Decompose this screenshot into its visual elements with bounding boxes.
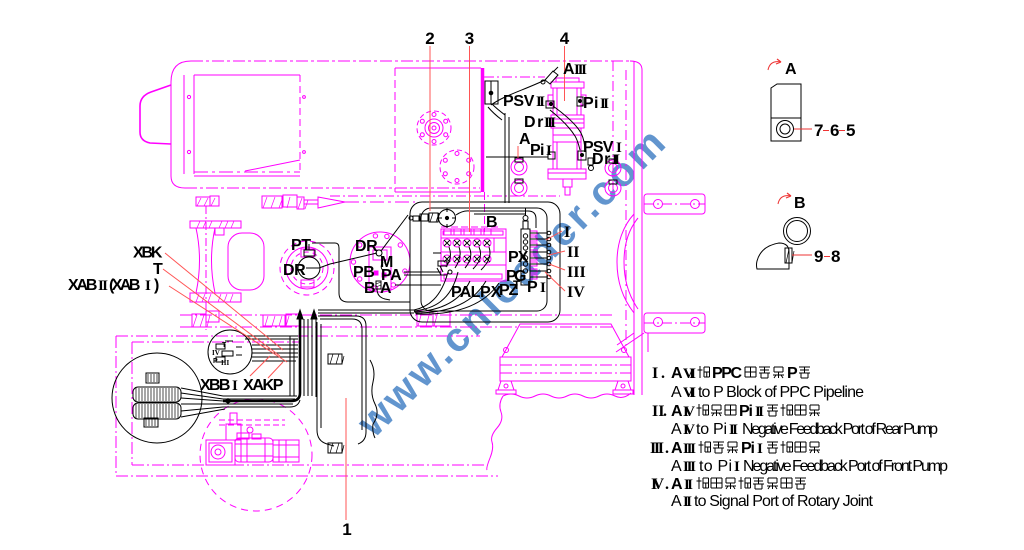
svg-text:IV: IV: [651, 476, 664, 493]
svg-text:to Signal Port of Rotary Joint: to Signal Port of Rotary Joint: [694, 493, 874, 510]
svg-text:PAL: PAL: [451, 284, 481, 301]
svg-text:A: A: [671, 403, 683, 420]
svg-text:VII: VII: [683, 366, 696, 382]
svg-text:III: III: [683, 441, 696, 457]
svg-text:P: P: [213, 358, 218, 365]
svg-text:.: .: [665, 440, 669, 457]
svg-text:II: II: [684, 477, 693, 493]
svg-text:to P Block of PPC Pipeline: to P Block of PPC Pipeline: [698, 384, 864, 401]
svg-text:VII: VII: [683, 385, 696, 401]
svg-text:III: III: [567, 264, 586, 281]
svg-text:3: 3: [465, 29, 474, 48]
svg-text:P: P: [787, 365, 798, 382]
svg-text:Dr: Dr: [592, 151, 610, 168]
svg-text:T: T: [222, 342, 227, 349]
svg-text:Pi: Pi: [739, 403, 753, 420]
svg-text:PSV: PSV: [503, 93, 535, 110]
svg-text:6: 6: [830, 121, 839, 140]
svg-text:B: B: [794, 195, 805, 212]
svg-text:to Pi: to Pi: [699, 458, 732, 475]
svg-text:XBK: XBK: [133, 245, 163, 262]
svg-text:5: 5: [846, 121, 855, 140]
svg-text:III: III: [544, 115, 556, 131]
svg-text:PPC: PPC: [712, 365, 742, 382]
svg-text:8: 8: [831, 247, 840, 266]
svg-text:II: II: [683, 494, 692, 510]
svg-text:II: II: [536, 94, 545, 110]
svg-text:.: .: [665, 476, 669, 493]
svg-text:to Pi: to Pi: [696, 421, 727, 438]
svg-text:XAB: XAB: [68, 277, 97, 294]
svg-text:IV: IV: [683, 422, 695, 438]
svg-text:7: 7: [814, 121, 823, 140]
svg-text:II: II: [729, 422, 738, 438]
svg-text:II: II: [98, 278, 108, 294]
svg-text:Pi: Pi: [530, 142, 544, 159]
svg-text:IV: IV: [683, 404, 695, 420]
svg-text:XAKP: XAKP: [243, 377, 284, 394]
svg-text:A: A: [785, 61, 797, 78]
svg-text:A: A: [671, 458, 682, 475]
svg-text:Pi: Pi: [583, 95, 598, 112]
svg-text:I: I: [145, 278, 151, 294]
svg-text:III: III: [221, 359, 229, 367]
svg-text:B: B: [364, 280, 375, 297]
svg-text:I: I: [652, 365, 658, 382]
svg-text:Negative Feedback Port of Rear: Negative Feedback Port of Rear Pump: [742, 421, 938, 438]
svg-text:II: II: [755, 404, 764, 420]
svg-text:A: A: [671, 384, 682, 401]
svg-text:Negative Feedback Port of Fron: Negative Feedback Port of Front Pump: [743, 458, 948, 475]
svg-text:A: A: [671, 493, 682, 510]
svg-text:(XAB: (XAB: [109, 277, 140, 294]
svg-text:PT: PT: [291, 237, 311, 254]
svg-text:PX: PX: [508, 249, 529, 266]
svg-text:T: T: [153, 261, 163, 278]
svg-text:P: P: [527, 279, 538, 296]
svg-text:II: II: [567, 244, 579, 261]
svg-text:II: II: [600, 96, 609, 112]
svg-text:I: I: [757, 441, 763, 457]
svg-text:DR: DR: [355, 238, 378, 255]
svg-text:): ): [154, 277, 159, 294]
svg-text:A: A: [671, 365, 683, 382]
svg-text:I: I: [540, 280, 546, 296]
svg-text:XBB: XBB: [200, 377, 230, 394]
svg-text:PG: PG: [506, 268, 526, 285]
svg-text:9: 9: [814, 247, 823, 266]
svg-text:III: III: [574, 62, 587, 78]
svg-text:I: I: [232, 378, 238, 394]
svg-text:A: A: [671, 440, 683, 457]
svg-text:4: 4: [560, 29, 570, 48]
svg-text:IV: IV: [567, 284, 585, 301]
svg-text:PB: PB: [353, 264, 374, 281]
svg-text:2: 2: [425, 29, 434, 48]
svg-text:A: A: [671, 421, 682, 438]
svg-text:B: B: [486, 214, 497, 231]
svg-text:II: II: [612, 152, 620, 168]
svg-text:.: .: [661, 365, 665, 382]
svg-text:I: I: [564, 224, 570, 241]
svg-text:Pi: Pi: [741, 440, 755, 457]
svg-text:IV: IV: [212, 349, 220, 357]
svg-text:I: I: [546, 143, 552, 159]
svg-text:1: 1: [342, 520, 351, 539]
svg-text:Dr: Dr: [524, 114, 543, 131]
svg-text:A: A: [380, 280, 392, 297]
svg-text:I: I: [734, 459, 740, 475]
svg-text:III: III: [683, 459, 696, 475]
svg-text:DR: DR: [283, 262, 306, 279]
svg-text:A: A: [671, 476, 683, 493]
svg-text:.: .: [663, 403, 667, 420]
svg-text:III: III: [650, 440, 664, 457]
